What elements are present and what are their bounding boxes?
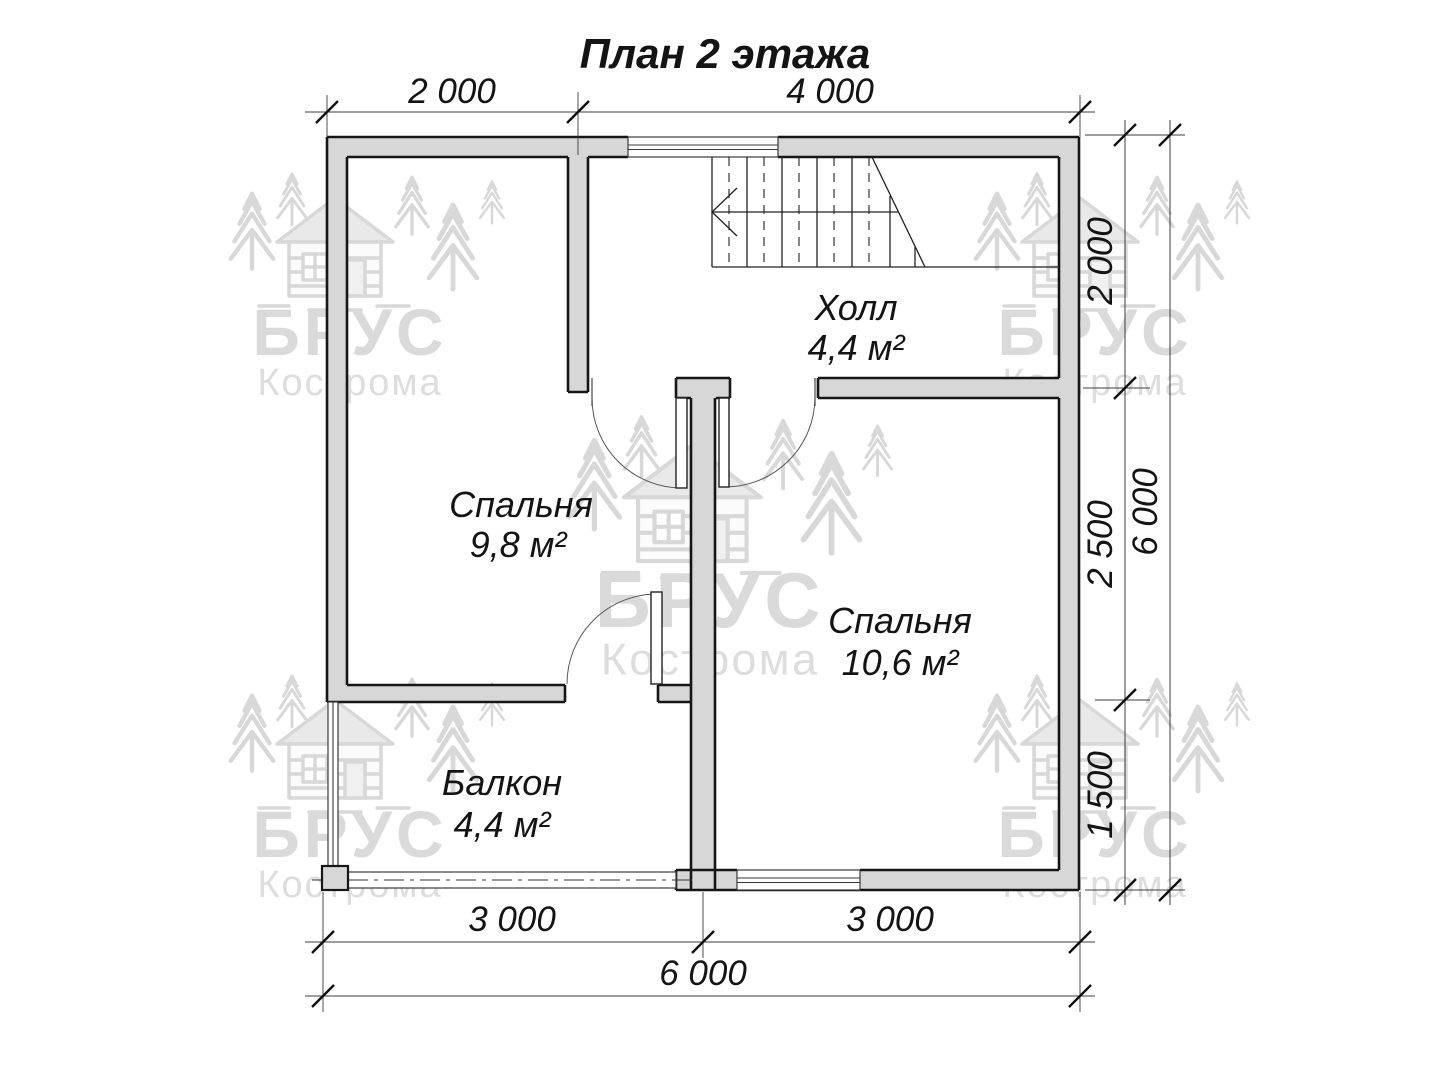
dim-right-total: 6 000 <box>1126 468 1165 556</box>
watermark-brand-text: БРУС <box>997 295 1192 369</box>
page-title: План 2 этажа <box>580 30 870 77</box>
balcony-corner-post <box>322 866 348 890</box>
dim-right-top: 2 000 <box>1081 217 1120 306</box>
room-name: Спальня <box>828 600 972 641</box>
room-label-balcony: Балкон 4,4 м² <box>442 762 562 845</box>
room-name: Холл <box>813 287 897 328</box>
floor-plan-image: БРУС Кострома БРУС Кострома БРУС Костром… <box>0 0 1440 1080</box>
room-name: Балкон <box>442 762 562 803</box>
watermark-brand-text: БРУС <box>252 295 447 369</box>
dim-top-right: 4 000 <box>786 72 874 111</box>
window-bottom <box>737 870 860 890</box>
dim-right-middle: 2 500 <box>1081 500 1120 589</box>
room-label-bedroom-small: Спальня 9,8 м² <box>449 484 593 565</box>
room-name: Спальня <box>449 484 593 525</box>
room-area: 4,4 м² <box>808 327 907 368</box>
stairs <box>712 157 1059 267</box>
dim-bottom-total: 6 000 <box>659 954 747 993</box>
room-area: 10,6 м² <box>842 642 961 683</box>
room-area: 4,4 м² <box>454 804 553 845</box>
stairs-direction-arrow <box>712 188 898 236</box>
watermark-top-left: БРУС Кострома <box>231 174 504 404</box>
door-hall-to-bedroom-large <box>719 378 815 487</box>
watermark-city-text: Кострома <box>257 362 442 404</box>
dim-right-bottom: 1 500 <box>1081 751 1120 839</box>
dim-bottom-left: 3 000 <box>468 900 556 939</box>
room-label-bedroom-large: Спальня 10,6 м² <box>828 600 972 683</box>
room-area: 9,8 м² <box>470 524 569 565</box>
dim-bottom-right: 3 000 <box>846 900 934 939</box>
watermark-brand-text: БРУС <box>252 797 447 871</box>
dim-top-left: 2 000 <box>407 72 496 111</box>
window-top <box>628 137 778 157</box>
floor-plan-svg: БРУС Кострома БРУС Кострома БРУС Костром… <box>0 0 1440 1080</box>
room-label-hall: Холл 4,4 м² <box>808 287 907 368</box>
